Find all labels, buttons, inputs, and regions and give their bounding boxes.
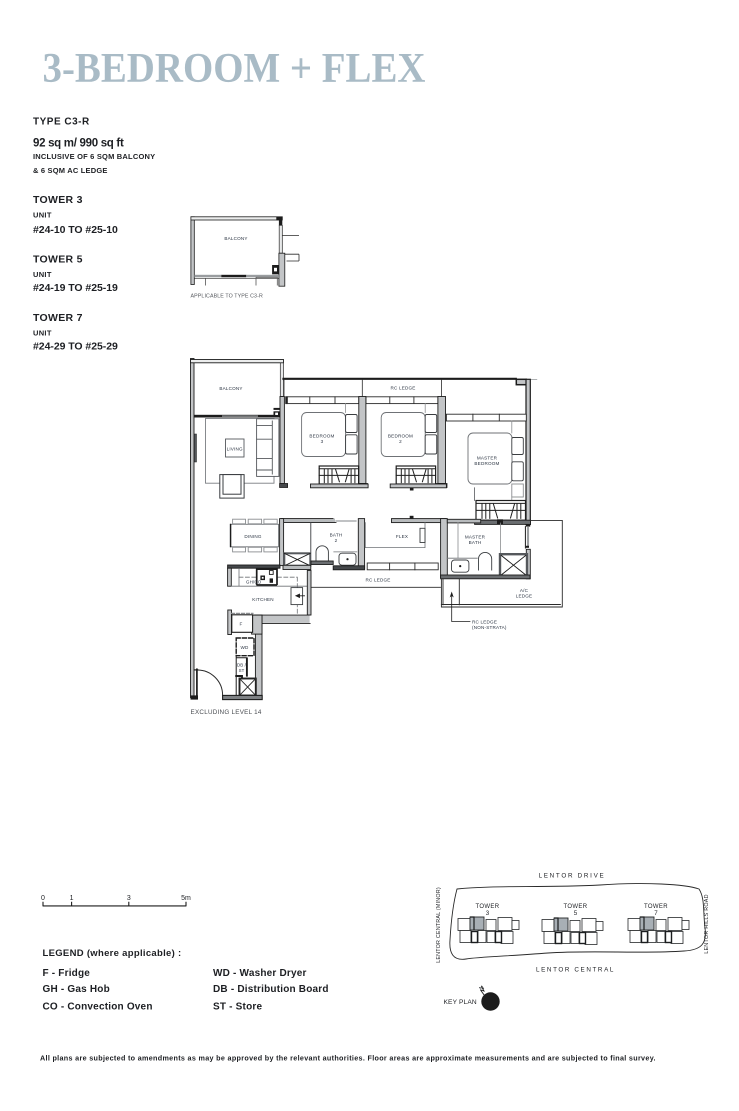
svg-text:GH/CO: GH/CO	[246, 580, 262, 585]
svg-text:F - Fridge: F - Fridge	[43, 968, 91, 979]
svg-text:TOWER 3: TOWER 3	[33, 194, 83, 206]
svg-text:TOWER 5: TOWER 5	[33, 254, 83, 266]
svg-text:EXCLUDING LEVEL 14: EXCLUDING LEVEL 14	[191, 709, 262, 716]
svg-text:UNIT: UNIT	[33, 329, 52, 338]
svg-text:3: 3	[127, 895, 131, 902]
svg-text:ST: ST	[239, 668, 245, 673]
svg-text:DB /: DB /	[237, 663, 247, 668]
svg-text:FLEX: FLEX	[396, 534, 408, 539]
svg-text:7: 7	[654, 910, 658, 917]
svg-text:3: 3	[486, 910, 490, 917]
svg-text:BALCONY: BALCONY	[224, 236, 247, 241]
svg-text:TYPE C3-R: TYPE C3-R	[33, 117, 90, 128]
svg-text:TOWER 7: TOWER 7	[33, 312, 83, 324]
svg-text:F: F	[239, 622, 242, 627]
svg-text:LIVING: LIVING	[227, 447, 243, 452]
svg-text:MASTER: MASTER	[465, 535, 486, 540]
svg-text:0: 0	[41, 895, 45, 902]
svg-text:KITCHEN: KITCHEN	[252, 597, 274, 602]
svg-text:& 6 SQM AC LEDGE: & 6 SQM AC LEDGE	[33, 166, 108, 175]
svg-text:BATH: BATH	[469, 540, 482, 545]
svg-text:LENTOR CENTRAL (MINOR): LENTOR CENTRAL (MINOR)	[436, 887, 442, 963]
svg-text:APPLICABLE TO TYPE C3-R: APPLICABLE TO TYPE C3-R	[191, 294, 263, 300]
svg-text:#24-29 TO #25-29: #24-29 TO #25-29	[33, 341, 118, 353]
svg-text:ST - Store: ST - Store	[213, 1002, 262, 1013]
svg-text:UNIT: UNIT	[33, 211, 52, 220]
svg-text:#24-10 TO #25-10: #24-10 TO #25-10	[33, 224, 118, 236]
svg-text:BEDROOM: BEDROOM	[388, 434, 413, 439]
svg-text:RC LEDGE: RC LEDGE	[390, 386, 415, 391]
svg-text:BEDROOM: BEDROOM	[474, 461, 499, 466]
svg-text:UNIT: UNIT	[33, 270, 52, 279]
svg-text:92 sq m/ 990 sq ft: 92 sq m/ 990 sq ft	[33, 138, 124, 150]
svg-text:KEY PLAN: KEY PLAN	[444, 999, 477, 1006]
svg-text:2: 2	[399, 439, 402, 444]
svg-text:DB - Distribution Board: DB - Distribution Board	[213, 984, 329, 995]
svg-text:WD - Washer Dryer: WD - Washer Dryer	[213, 968, 307, 979]
svg-text:BATH: BATH	[330, 533, 343, 538]
svg-text:3-BEDROOM + FLEX: 3-BEDROOM + FLEX	[43, 45, 426, 92]
svg-text:A/C: A/C	[520, 588, 529, 593]
svg-text:LENTOR HILLS ROAD: LENTOR HILLS ROAD	[704, 894, 710, 954]
svg-text:1: 1	[70, 895, 74, 902]
svg-text:LEDGE: LEDGE	[516, 594, 533, 599]
svg-text:WD: WD	[240, 645, 249, 650]
svg-text:#24-19 TO #25-19: #24-19 TO #25-19	[33, 282, 118, 294]
svg-text:(NON-STRATA): (NON-STRATA)	[472, 625, 507, 630]
svg-text:CO - Convection Oven: CO - Convection Oven	[43, 1002, 153, 1013]
svg-text:GH - Gas Hob: GH - Gas Hob	[43, 984, 110, 995]
svg-text:3: 3	[321, 439, 324, 444]
svg-text:MASTER: MASTER	[477, 456, 498, 461]
svg-text:2: 2	[335, 538, 338, 543]
svg-text:RC LEDGE: RC LEDGE	[472, 620, 497, 625]
svg-text:RC LEDGE: RC LEDGE	[365, 578, 390, 583]
svg-text:BALCONY: BALCONY	[219, 386, 242, 391]
svg-text:All plans are subjected to ame: All plans are subjected to amendments as…	[40, 1054, 656, 1063]
svg-text:BEDROOM: BEDROOM	[309, 434, 334, 439]
svg-text:INCLUSIVE OF 6 SQM BALCONY: INCLUSIVE OF 6 SQM BALCONY	[33, 152, 155, 161]
svg-text:LEGEND (where applicable) :: LEGEND (where applicable) :	[43, 948, 182, 959]
svg-text:5: 5	[574, 910, 578, 917]
svg-text:LENTOR CENTRAL: LENTOR CENTRAL	[536, 967, 615, 974]
svg-text:5m: 5m	[181, 895, 191, 902]
svg-text:DINING: DINING	[244, 534, 262, 539]
svg-text:LENTOR DRIVE: LENTOR DRIVE	[539, 873, 606, 880]
